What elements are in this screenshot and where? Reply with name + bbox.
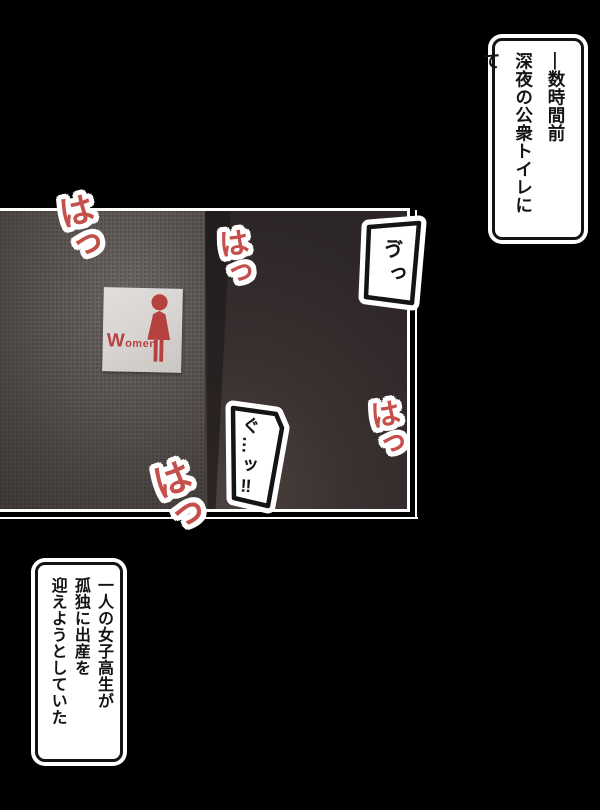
panel-border-bottom-line [0, 517, 418, 519]
woman-pictogram-icon [138, 292, 178, 369]
panel-artwork: Women [0, 211, 407, 509]
narration-top-text: ―数時間前 深夜の公衆トイレにて [495, 41, 581, 237]
narration-box-top: ―数時間前 深夜の公衆トイレにて [492, 38, 584, 240]
manga-page: ―数時間前 深夜の公衆トイレにて Women ゔっ [0, 0, 600, 810]
narration-box-bottom: 一人の女子高生が 孤独に出産を 迎えようとしていた [35, 562, 123, 762]
sfx-ha-2: はっ [213, 226, 251, 290]
comic-panel: Women [0, 208, 410, 512]
bubble-gasp-text: ゔっ [375, 237, 410, 290]
narration-bottom-text: 一人の女子高生が 孤独に出産を 迎えようとしていた [38, 565, 120, 759]
women-restroom-sign: Women [102, 287, 183, 373]
